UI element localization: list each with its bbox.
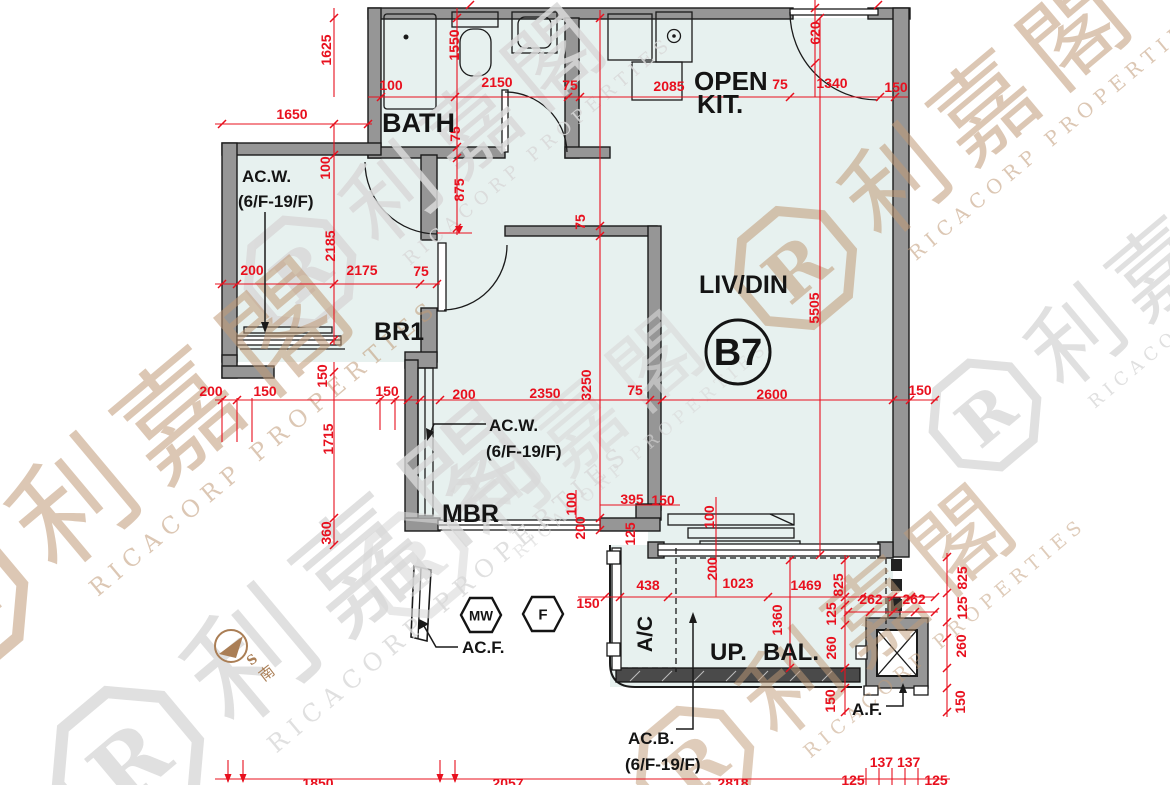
dimension-label: 2350 — [529, 385, 560, 401]
dimension-label: 262 — [859, 591, 883, 607]
dimension-label: 2175 — [346, 262, 377, 278]
dimension-label: 1550 — [446, 29, 462, 60]
dimension-label: 100 — [317, 156, 333, 180]
dimension-label: 75 — [772, 76, 788, 92]
dimension-label: 150 — [952, 690, 968, 714]
dimension-label: 100 — [701, 505, 717, 529]
dimension-label: 2057 — [492, 775, 523, 785]
dimension-label: 2600 — [756, 386, 787, 402]
dimension-label: 620 — [807, 21, 823, 45]
dimension-label: 125 — [823, 602, 839, 626]
room-label-liv-din: LIV/DIN — [699, 271, 788, 299]
mw-badge-label: MW — [469, 609, 493, 624]
dimension-label: 825 — [830, 573, 846, 597]
dimension-label: 1650 — [276, 106, 307, 122]
dimension-label: 2085 — [653, 78, 684, 94]
dimension-label: 200 — [704, 557, 720, 581]
dimension-label: 200 — [452, 386, 476, 402]
dimension-label: 1469 — [790, 577, 821, 593]
dimension-label: 2818 — [717, 775, 748, 785]
room-label-ac: A/C — [634, 616, 657, 652]
dimension-label: 200 — [572, 516, 588, 540]
br1-door-leaf — [438, 243, 446, 311]
dimension-label: 100 — [379, 77, 403, 93]
dimension-label: 260 — [823, 636, 839, 660]
dimension-label: 825 — [954, 566, 970, 590]
dimension-label: 438 — [636, 577, 660, 593]
dimension-label: 1625 — [318, 34, 334, 65]
room-label-bal: BAL. — [763, 639, 819, 666]
room-label-br1: BR1 — [374, 318, 424, 346]
dimension-label: 75 — [562, 77, 578, 93]
dimension-label: 137 137 — [870, 754, 921, 770]
dimension-label: 150 — [375, 383, 399, 399]
unit-badge-label: B7 — [714, 332, 763, 374]
dimension-label: 260 — [953, 634, 969, 658]
annotation-acw-2: AC.W. — [489, 416, 538, 435]
room-label-mbr: MBR — [442, 500, 499, 528]
dimension-label: 1340 — [816, 75, 847, 91]
dimension-label: 3250 — [578, 369, 594, 400]
dimension-label: 150 — [651, 492, 675, 508]
dimension-label: 100 — [563, 492, 579, 516]
dimension-label: 125 — [841, 772, 865, 785]
dimension-label: 75 — [413, 263, 429, 279]
dimension-label: 2185 — [322, 230, 338, 261]
dimension-label: 360 — [318, 521, 334, 545]
dimension-label: 1850 — [302, 775, 333, 785]
dimension-label: 125 — [924, 772, 948, 785]
annotation-acw-1-floors: (6/F-19/F) — [238, 192, 314, 211]
dimension-label: 2150 — [481, 74, 512, 90]
dimension-label: 395 — [620, 491, 644, 507]
bathtub-drain — [404, 35, 409, 40]
dimension-label: 200 — [240, 262, 264, 278]
dimension-label: 262 — [902, 591, 926, 607]
annotation-acf: AC.F. — [462, 638, 505, 657]
annotation-acb: AC.B. — [628, 729, 674, 748]
annotation-acw-1: AC.W. — [242, 167, 291, 186]
entry-door-leaf — [790, 9, 878, 15]
annotation-af: A.F. — [852, 700, 882, 719]
annotation-acw-2-floors: (6/F-19/F) — [486, 442, 562, 461]
dimension-label: 200 — [199, 383, 223, 399]
dimension-label: 75 — [627, 382, 643, 398]
dimension-label: 125 — [622, 522, 638, 546]
dimension-label: 5505 — [806, 292, 822, 323]
dimension-label: 875 — [451, 178, 467, 202]
dimension-label: 150 — [822, 689, 838, 713]
f-badge-label: F — [538, 607, 547, 624]
annotation-acb-floors: (6/F-19/F) — [625, 755, 701, 774]
dimension-label: 150 — [314, 364, 330, 388]
dimension-label: 150 — [576, 595, 600, 611]
room-label-up: UP. — [710, 639, 747, 666]
dimension-label: 75 — [572, 214, 588, 230]
dimension-label: 1023 — [722, 575, 753, 591]
floor-plan: R 利嘉閣 RICACORP PROPERTIES — [0, 0, 1170, 785]
dimension-label: 125 — [954, 596, 970, 620]
dimension-label: 150 — [253, 383, 277, 399]
room-label-open-kit-line2: KIT. — [697, 89, 743, 119]
dimension-label: 150 — [908, 382, 932, 398]
dimension-label: 1715 — [320, 423, 336, 454]
dimension-label: 150 — [884, 79, 908, 95]
dimension-label: 1360 — [769, 604, 785, 635]
room-label-bath: BATH — [382, 108, 455, 138]
